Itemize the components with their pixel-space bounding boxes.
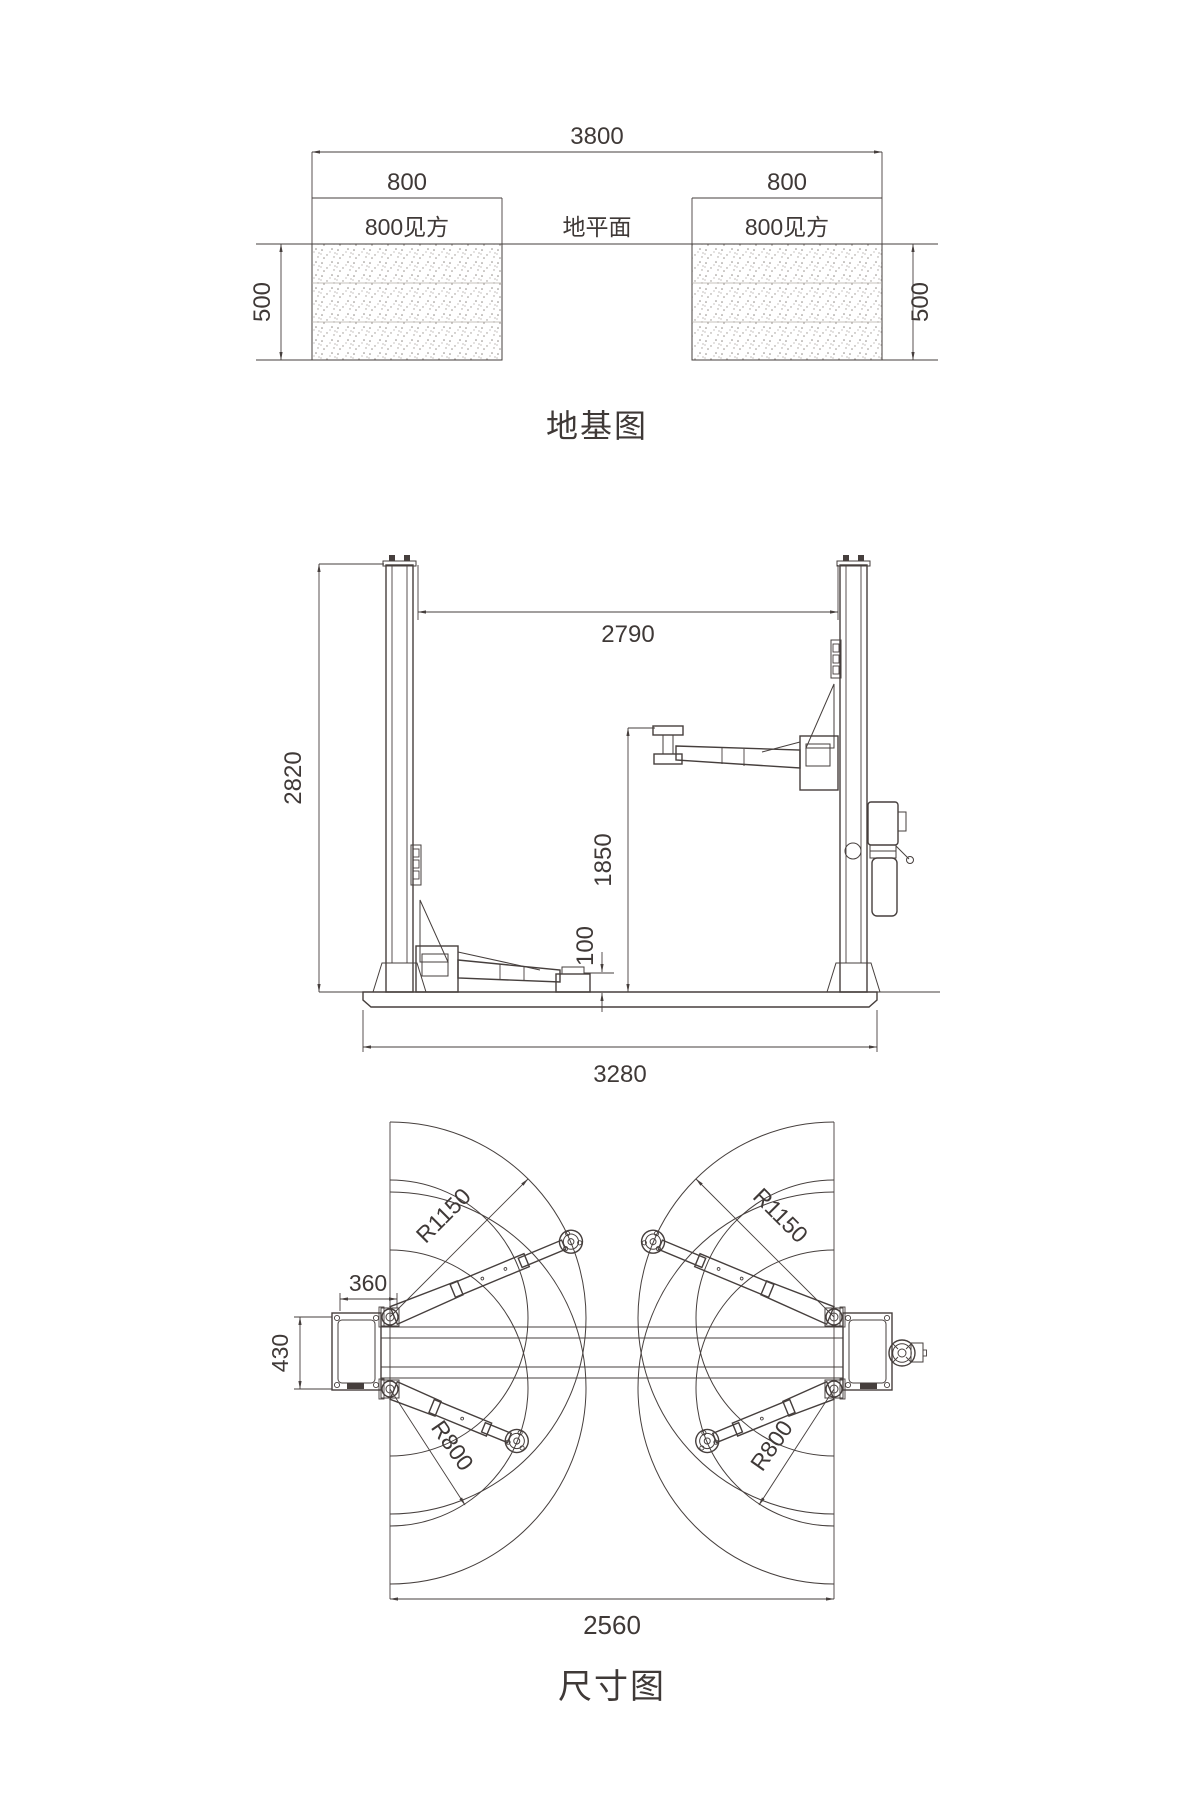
radius-r1150-left-label: R1150 <box>411 1183 476 1248</box>
left-column-foot <box>373 963 426 992</box>
concrete-block-right <box>692 244 882 360</box>
dim-500-right-label: 500 <box>907 282 934 322</box>
dim-500-left-label: 500 <box>249 282 276 322</box>
dim-500-right: 500 <box>882 244 938 360</box>
foundation-diagram: 3800 800 800 800见方 800见方 地平面 <box>249 123 938 444</box>
front-right-arm <box>638 1227 835 1326</box>
block-right-label: 800见方 <box>745 214 829 240</box>
ground-level-label: 地平面 <box>563 214 632 240</box>
dim-2820: 2820 <box>280 564 384 992</box>
block-left-label: 800见方 <box>365 214 449 240</box>
motor-plan <box>889 1340 927 1366</box>
dim-800-right-label: 800 <box>767 169 807 196</box>
dim-3280: 3280 <box>363 1010 877 1088</box>
arm-pivots <box>379 1307 845 1399</box>
dim-360-label: 360 <box>349 1270 387 1296</box>
dim-500-left: 500 <box>249 244 312 360</box>
drawing-page: 3800 800 800 800见方 800见方 地平面 <box>0 0 1200 1800</box>
foundation-title: 地基图 <box>546 408 648 444</box>
left-column <box>383 555 416 992</box>
dim-430: 430 <box>267 1317 332 1389</box>
dim-2790: 2790 <box>418 565 838 648</box>
radius-r800-right-label: R800 <box>745 1415 798 1475</box>
right-column-foot <box>827 963 880 992</box>
base-rails <box>381 1327 843 1378</box>
dim-2560-label: 2560 <box>583 1610 641 1640</box>
left-column-plan <box>332 1308 399 1398</box>
power-unit <box>868 802 914 916</box>
right-carriage-raised-arm <box>653 640 841 790</box>
dim-360: 360 <box>340 1270 397 1311</box>
dim-100-label: 100 <box>572 926 599 966</box>
concrete-block-left <box>312 244 502 360</box>
dim-800-left-label: 800 <box>387 169 427 196</box>
dim-2820-label: 2820 <box>280 751 307 804</box>
plan-view-title: 尺寸图 <box>558 1668 666 1706</box>
base-plate <box>363 992 877 1007</box>
dim-1850-label: 1850 <box>590 833 617 886</box>
radius-r800-left: R800 <box>390 1389 479 1505</box>
dim-2560: 2560 <box>390 1599 834 1640</box>
front-left-arm <box>389 1227 586 1326</box>
dim-2790-label: 2790 <box>601 621 654 648</box>
dim-3280-label: 3280 <box>593 1061 646 1088</box>
plan-view: R1150 R1150 R800 R800 360 430 <box>267 1122 927 1706</box>
dim-1850: 1850 <box>590 728 655 992</box>
dim-100: 100 <box>572 926 614 1012</box>
side-elevation-view: 2820 2790 1850 100 3280 <box>280 555 940 1088</box>
right-column <box>837 555 870 992</box>
dim-3800-label: 3800 <box>570 123 623 150</box>
radius-r800-left-label: R800 <box>426 1415 479 1475</box>
dim-430-label: 430 <box>267 1334 293 1372</box>
radius-r800-right: R800 <box>745 1389 834 1505</box>
radius-r1150-right-label: R1150 <box>748 1183 813 1248</box>
left-carriage-lowered-arm <box>411 845 590 992</box>
lift-technical-drawing: 3800 800 800 800见方 800见方 地平面 <box>0 0 1200 1800</box>
column-hole <box>845 843 861 859</box>
